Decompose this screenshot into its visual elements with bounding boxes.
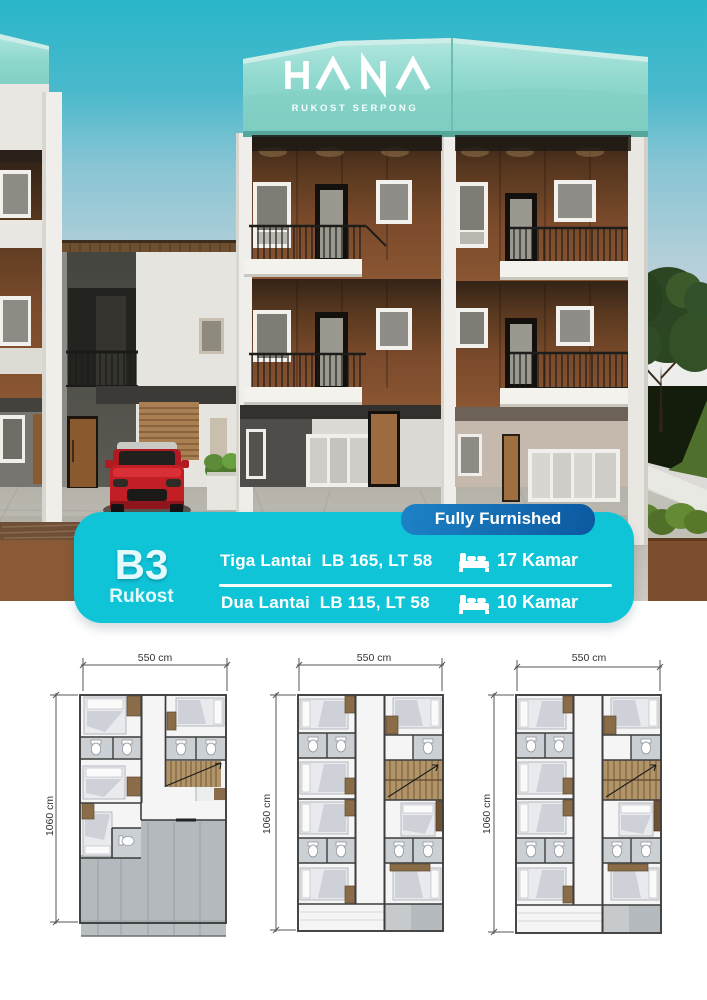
svg-text:1060 cm: 1060 cm xyxy=(261,794,273,835)
svg-text:1060 cm: 1060 cm xyxy=(481,794,493,835)
svg-text:550 cm: 550 cm xyxy=(138,652,173,664)
svg-text:1060 cm: 1060 cm xyxy=(44,796,56,837)
svg-text:RUKOST SERPONG: RUKOST SERPONG xyxy=(292,103,419,114)
svg-text:550 cm: 550 cm xyxy=(357,652,392,664)
svg-text:550 cm: 550 cm xyxy=(572,652,607,664)
